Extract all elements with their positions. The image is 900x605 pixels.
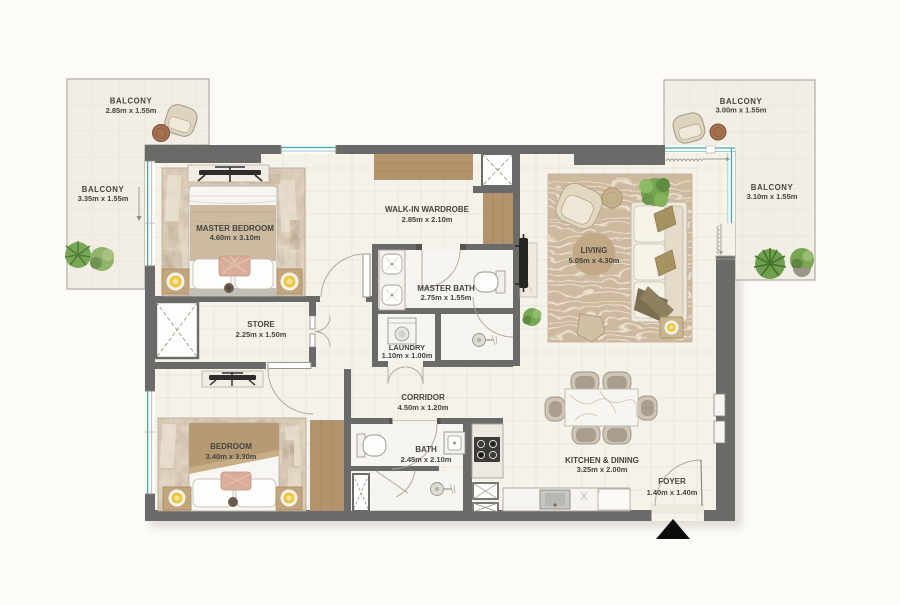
- svg-text:BALCONY: BALCONY: [82, 185, 125, 194]
- svg-text:1.10m x 1.00m: 1.10m x 1.00m: [382, 351, 433, 360]
- svg-text:BEDROOM: BEDROOM: [210, 442, 252, 451]
- svg-text:4.50m x 1.20m: 4.50m x 1.20m: [398, 403, 449, 412]
- svg-text:2.45m x 2.10m: 2.45m x 2.10m: [401, 455, 452, 464]
- svg-text:1.40m x 1.40m: 1.40m x 1.40m: [647, 488, 698, 497]
- svg-text:BALCONY: BALCONY: [751, 183, 794, 192]
- svg-text:2.85m x 1.55m: 2.85m x 1.55m: [106, 106, 157, 115]
- svg-text:4.60m x 3.10m: 4.60m x 3.10m: [210, 233, 261, 242]
- svg-text:5.05m x 4.30m: 5.05m x 4.30m: [569, 256, 620, 265]
- svg-text:2.25m x 1.50m: 2.25m x 1.50m: [236, 330, 287, 339]
- svg-text:CORRIDOR: CORRIDOR: [401, 393, 445, 402]
- svg-text:3.10m x 1.55m: 3.10m x 1.55m: [747, 192, 798, 201]
- svg-text:BATH: BATH: [415, 445, 437, 454]
- svg-text:MASTER BATH: MASTER BATH: [417, 284, 475, 293]
- svg-text:3.25m x 2.00m: 3.25m x 2.00m: [577, 465, 628, 474]
- svg-text:WALK-IN WARDROBE: WALK-IN WARDROBE: [385, 205, 470, 214]
- svg-text:FOYER: FOYER: [658, 477, 686, 486]
- svg-text:MASTER BEDROOM: MASTER BEDROOM: [196, 224, 274, 233]
- svg-text:STORE: STORE: [247, 320, 275, 329]
- svg-text:3.35m x 1.55m: 3.35m x 1.55m: [78, 194, 129, 203]
- svg-text:LIVING: LIVING: [581, 246, 608, 255]
- svg-text:2.75m x 1.55m: 2.75m x 1.55m: [421, 293, 472, 302]
- svg-text:BALCONY: BALCONY: [110, 97, 153, 106]
- svg-text:3.40m x 3.30m: 3.40m x 3.30m: [206, 452, 257, 461]
- svg-text:2.85m x 2.10m: 2.85m x 2.10m: [402, 215, 453, 224]
- svg-text:3.00m x 1.55m: 3.00m x 1.55m: [716, 106, 767, 115]
- svg-text:KITCHEN & DINING: KITCHEN & DINING: [565, 456, 639, 465]
